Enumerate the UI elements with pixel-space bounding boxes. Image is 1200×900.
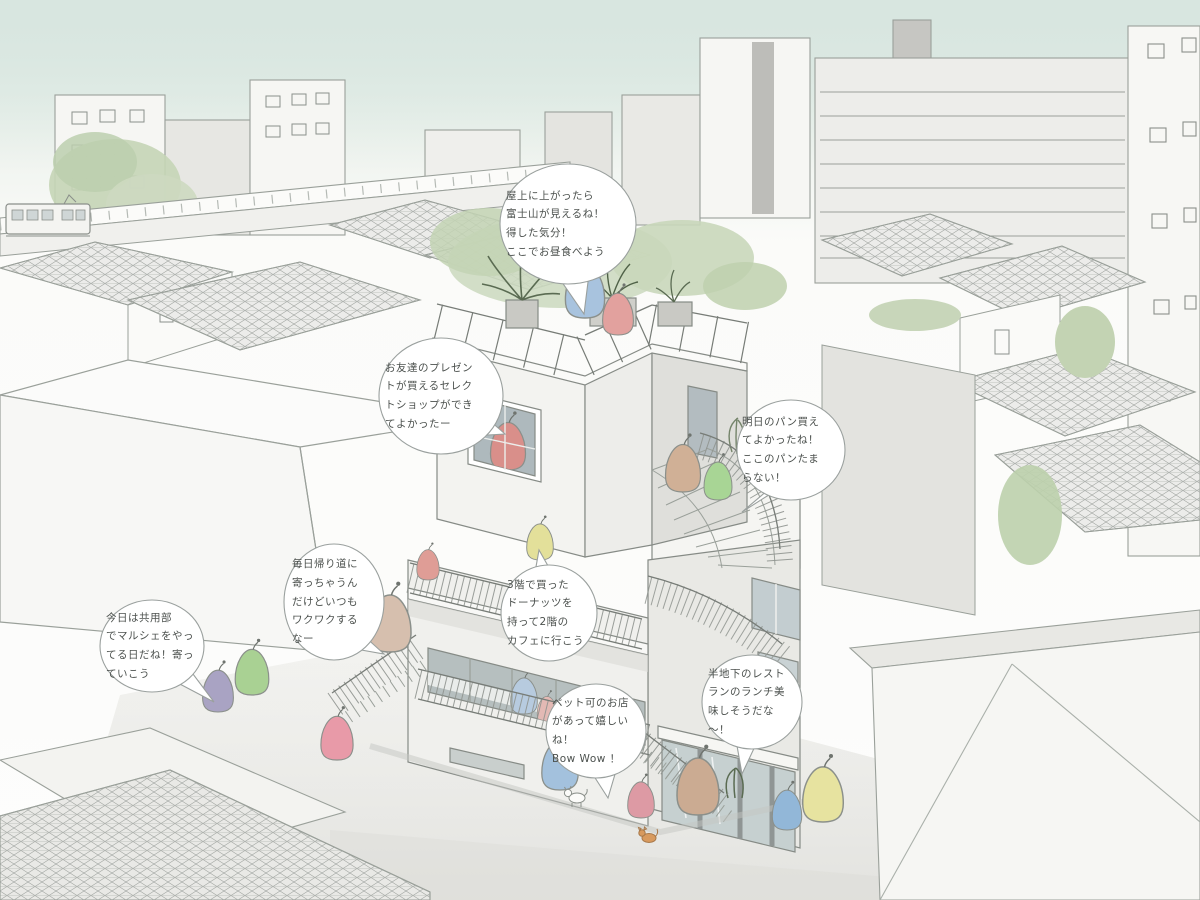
illustration-canvas: 屋上に上がったら 富士山が見えるね！ 得した気分！ ここでお昼食べよう お友達の… (0, 0, 1200, 900)
speech-bubble-donuts (501, 550, 597, 661)
person-street-green (235, 639, 269, 695)
watercolor-scene (0, 0, 1200, 900)
third-floor-door (688, 386, 717, 458)
speech-bubble-daily-stopby (284, 544, 384, 660)
person-terrace-pink (417, 542, 439, 580)
person-street-purple (203, 660, 234, 712)
